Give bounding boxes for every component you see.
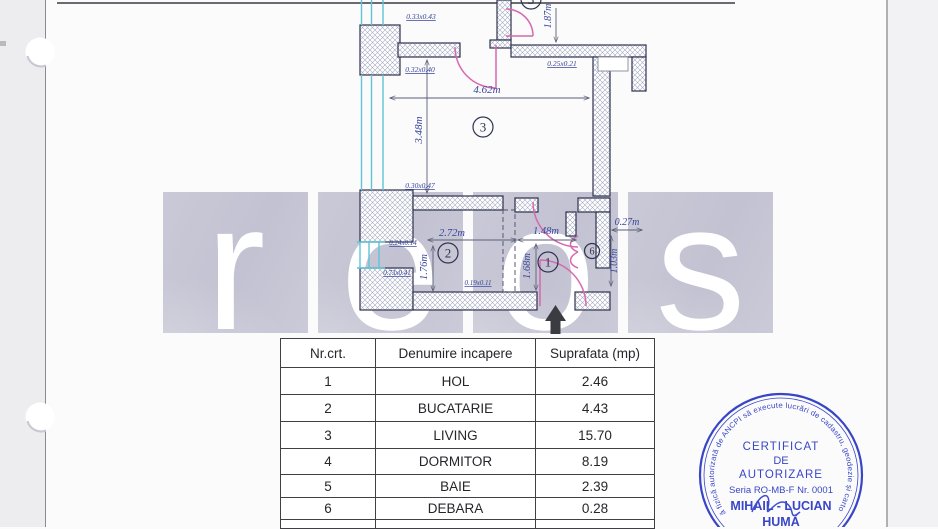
stamp-line-seria: Seria RO-MB-F Nr. 0001 <box>729 485 833 496</box>
wall-segment <box>413 292 537 310</box>
dashed-partition <box>503 210 515 292</box>
table-cell-name: BAIE <box>376 475 536 498</box>
table-header-area: Suprafata (mp) <box>536 339 654 368</box>
stamp-line-de: DE <box>773 455 788 467</box>
niche-label: 0.33x0.43 <box>406 12 436 21</box>
dim-top-height: 1.87m <box>543 4 554 29</box>
wall-segment <box>632 57 646 91</box>
table-cell-nr: 2 <box>281 395 376 422</box>
entrance-arrow <box>545 305 566 334</box>
niche-label: 0.25x0.21 <box>547 59 577 68</box>
rooms-table: Nr.crt. Denumire incapere Suprafata (mp)… <box>280 338 655 529</box>
table-cell-nr: 4 <box>281 449 376 475</box>
dim-closet-width: 0.27m <box>615 217 640 228</box>
room-number-hall: 1 <box>545 255 552 270</box>
wall-segment <box>413 196 503 210</box>
table-cell-nr: 1 <box>281 368 376 395</box>
room-number-closet: 6 <box>590 247 595 258</box>
dim-closet-height: 1.03m <box>609 249 620 274</box>
wall-segment <box>515 198 538 212</box>
table-cell-area: 2.46 <box>536 368 654 395</box>
wall-segment <box>360 25 400 75</box>
table-cell-name: HOL <box>376 368 536 395</box>
dim-kitchen-height: 1.76m <box>419 254 430 280</box>
niche-label: 0.73x0.41 <box>383 269 411 277</box>
table-cell-name: DEBARA <box>376 498 536 520</box>
niche-label: 0.24x0.14 <box>389 239 417 247</box>
dim-living-width: 4.62m <box>473 84 500 96</box>
dim-hall-width: 1.48m <box>533 226 559 237</box>
stamp-line-name: MIHAIL - LUCIAN <box>730 499 831 513</box>
stamp-line-autorizare: AUTORIZARE <box>739 469 823 481</box>
wall-segment <box>578 198 610 212</box>
table-header-nr: Nr.crt. <box>281 339 376 368</box>
table-cell-area: 15.70 <box>536 422 654 449</box>
table-cell-area: 8.19 <box>536 449 654 475</box>
wall-segment <box>398 43 460 57</box>
wall-segment <box>596 212 610 268</box>
wall-segment <box>360 190 413 242</box>
walls <box>360 0 646 310</box>
dim-living-height: 3.48m <box>413 116 425 144</box>
dim-hall-height: 1.68m <box>522 253 533 279</box>
punch-hole <box>26 38 55 67</box>
niche-label: 0.30x0.47 <box>405 181 435 190</box>
table-cell-area: 0.28 <box>536 498 654 520</box>
table-cell-name: LIVING <box>376 422 536 449</box>
table-cell-nr: 3 <box>281 422 376 449</box>
table-cell-area: 4.43 <box>536 395 654 422</box>
table-cell-nr: 6 <box>281 498 376 520</box>
stamp-line-certificat: CERTIFICAT <box>743 441 820 453</box>
table-cell-area: 2.39 <box>536 475 654 498</box>
wall-niche <box>598 57 628 71</box>
table-header-name: Denumire incapere <box>376 339 536 368</box>
wall-segment <box>575 292 610 310</box>
niche-label: 0.32x0.40 <box>405 65 435 74</box>
table-cell-name: DORMITOR <box>376 449 536 475</box>
edge-mark <box>0 41 6 46</box>
wall-segment <box>593 57 610 196</box>
table-cell-nr: 5 <box>281 475 376 498</box>
scanned-document-page: r e o s <box>0 0 938 527</box>
room-number-top: 5 <box>528 0 535 7</box>
authorization-stamp: ă fizică autorizată de ANCPI să execute … <box>700 394 862 527</box>
bifold-door <box>571 236 579 268</box>
room-number-living: 3 <box>480 120 487 135</box>
door-arc <box>455 45 496 88</box>
niche-label: 0.19x0.11 <box>464 279 491 287</box>
wall-segment <box>511 45 646 57</box>
table-cell-name: BUCATARIE <box>376 395 536 422</box>
wall-segment <box>566 212 576 236</box>
punch-hole <box>26 403 55 432</box>
room-number-kitchen: 2 <box>445 246 452 261</box>
wall-segment <box>490 40 511 48</box>
dim-kitchen-width: 2.72m <box>439 228 465 239</box>
wall-segment <box>497 0 511 40</box>
